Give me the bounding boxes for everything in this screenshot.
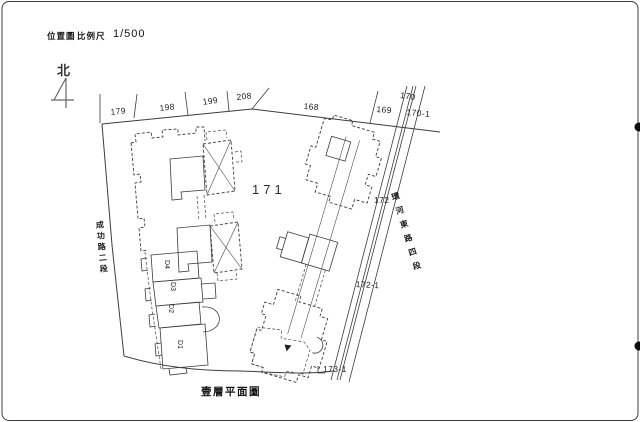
stair-core-mid xyxy=(210,212,242,281)
lot-172-1: 172-1 xyxy=(355,279,379,290)
lot-173-1: 173-1 xyxy=(323,364,347,374)
stair-core-top xyxy=(203,140,242,195)
unit-label-d3: D3 xyxy=(169,282,176,291)
sheet-caption: 壹層平面圖 xyxy=(201,384,261,399)
stair-bump-right xyxy=(312,337,324,355)
lot-170: 170 xyxy=(400,90,417,102)
page-border xyxy=(2,2,638,421)
scale-label: 比例尺 xyxy=(77,30,106,42)
map-title: 位置圖 xyxy=(47,30,76,42)
lot-171: 171 xyxy=(252,182,286,197)
unit-label-d1: D1 xyxy=(176,340,183,349)
lot-172: 172 xyxy=(374,195,389,205)
lot-169: 169 xyxy=(376,104,392,115)
building-right xyxy=(242,110,390,387)
lot-198: 198 xyxy=(159,101,175,113)
lot-170-1: 170-1 xyxy=(406,107,431,119)
site-plan-sheet: 位置圖 比例尺 1/500 北 179 198 199 208 168 169 … xyxy=(0,0,640,422)
unit-label-d2: D2 xyxy=(167,304,174,313)
lot-199: 199 xyxy=(202,95,219,107)
north-label: 北 xyxy=(57,60,70,79)
lot-208: 208 xyxy=(236,90,252,102)
scale-value: 1/500 xyxy=(113,28,146,40)
slope-arrow-icon xyxy=(283,344,292,353)
north-arrow-icon xyxy=(51,78,74,108)
building-left xyxy=(131,127,242,375)
stair-bump xyxy=(202,307,219,332)
site-boundary xyxy=(102,109,440,373)
lot-168: 168 xyxy=(303,101,319,112)
unit-label-d4: D4 xyxy=(163,260,170,269)
punch-holes xyxy=(635,123,640,351)
lot-179: 179 xyxy=(110,105,126,117)
site-plan-drawing xyxy=(0,0,640,422)
